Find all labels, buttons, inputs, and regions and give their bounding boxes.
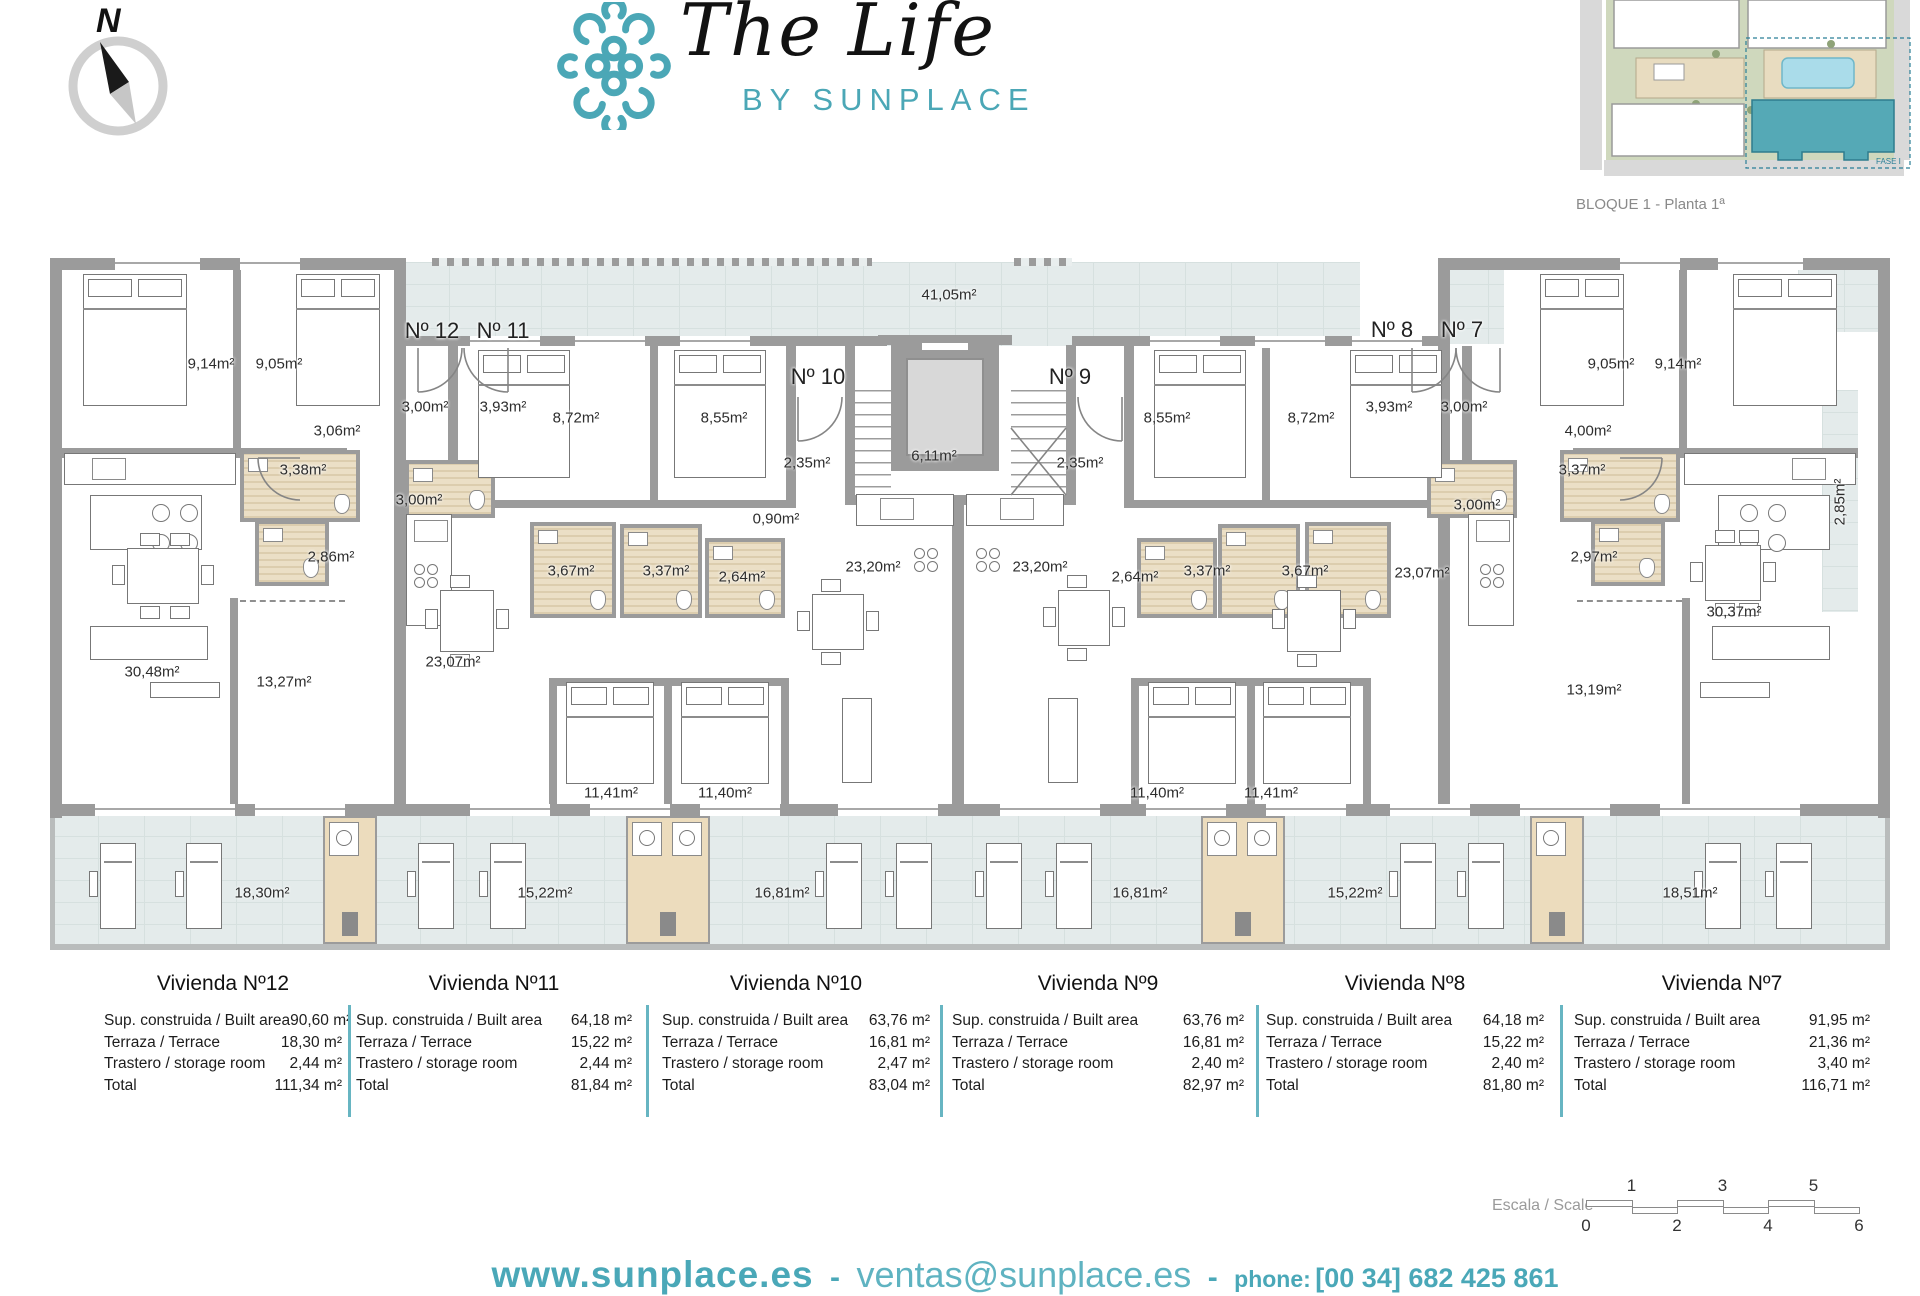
toilet [1654,494,1670,514]
row-value: 81,80 m² [1483,1075,1544,1097]
bed-pillow [138,279,182,297]
wall [1363,682,1371,808]
elevator-door [922,343,968,350]
window [1718,258,1803,270]
lounger-sidetable [1765,871,1774,897]
window [680,336,750,348]
chair [170,606,190,619]
scalebar-segment [1632,1207,1679,1214]
chair [140,533,160,546]
kitchen-counter [64,453,236,485]
dashed-partition [1577,600,1682,602]
room-area-label: 23,20m² [845,559,900,576]
chair [1112,607,1125,627]
dining-table [1287,590,1341,652]
stool [1740,504,1758,522]
bed-pillow [88,279,132,297]
storage-door [1549,912,1565,936]
vivienda-row: Sup. construida / Built area64,18 m² [356,1010,632,1032]
lounger-headrest [1709,861,1737,863]
stove-burner [1493,564,1504,575]
scalebar-segment [1723,1207,1770,1214]
room-area-label: 2,85m² [1832,479,1849,526]
elevator-cab [906,358,984,456]
table-divider [348,1005,351,1117]
wall [1124,346,1134,508]
sun-lounger [826,843,862,929]
chair [821,579,841,592]
window [1620,258,1680,270]
lounger-headrest [1060,861,1088,863]
kitchen-counter [1684,453,1856,485]
stair-flight [852,390,891,495]
wall [664,682,672,808]
vivienda-row: Terraza / Terrace16,81 m² [952,1032,1244,1054]
tv-unit [150,682,220,698]
bed-pillow [301,279,335,297]
dining-table [440,590,494,652]
storage-door [1235,912,1251,936]
room-area-label: 9,14m² [188,356,235,373]
lounger-headrest [830,861,858,863]
window [590,804,670,816]
row-value: 3,40 m² [1817,1053,1870,1075]
bed-blanket-line [1148,716,1236,718]
wall [1124,500,1472,508]
lounger-headrest [1472,861,1500,863]
window [470,804,550,816]
dining-table [1058,590,1110,646]
row-label: Sup. construida / Built area [1266,1010,1452,1032]
lounger-headrest [1404,861,1432,863]
bed-blanket-line [566,716,654,718]
room-area-label: 16,81m² [754,885,809,902]
bed-pillow [1355,355,1393,373]
room-area-label: 0,90m² [753,511,800,528]
vivienda-row: Sup. construida / Built area64,18 m² [1266,1010,1544,1032]
room-area-label: 41,05m² [921,287,976,304]
vivienda-row: Sup. construida / Built area91,95 m² [1574,1010,1870,1032]
room-area-label: 15,22m² [517,885,572,902]
window [838,804,938,816]
chair [201,565,214,585]
room-area-label: 2,35m² [1057,455,1104,472]
terrace-edge-left [50,814,55,950]
lounger-sidetable [1457,871,1466,897]
window [1390,804,1470,816]
row-label: Trastero / storage room [952,1053,1113,1075]
room-area-label: 3,38m² [280,462,327,479]
vivienda-row: Total82,97 m² [952,1075,1244,1097]
vivienda-table: Vivienda Nº10Sup. construida / Built are… [662,972,930,1096]
row-label: Trastero / storage room [356,1053,517,1075]
bed-blanket-line [478,384,570,386]
vivienda-row: Total81,84 m² [356,1075,632,1097]
room-area-label: 16,81m² [1112,885,1167,902]
row-value: 83,04 m² [869,1075,930,1097]
room-area-label: 3,06m² [314,423,361,440]
row-label: Trastero / storage room [104,1053,265,1075]
lounger-sidetable [407,871,416,897]
bed-pillow [483,355,521,373]
table-divider [940,1005,943,1117]
washing-machine-drum [336,830,352,846]
chair [450,575,470,588]
bed-blanket-line [1350,384,1442,386]
chair [1067,648,1087,661]
row-label: Total [104,1075,137,1097]
wall [549,682,557,808]
sink [713,546,733,560]
row-label: Total [662,1075,695,1097]
chair [1297,654,1317,667]
row-value: 63,76 m² [1183,1010,1244,1032]
wall [50,258,402,270]
row-value: 111,34 m² [275,1075,343,1097]
sofa [842,698,872,783]
stair-landing [891,471,999,495]
stove-burner [914,548,925,559]
footer-phone-number: [00 34] 682 425 861 [1315,1263,1558,1293]
row-label: Total [356,1075,389,1097]
room-area-label: 3,37m² [643,563,690,580]
bed-pillow [686,687,722,705]
room-area-label: 2,86m² [308,549,355,566]
sun-lounger [100,843,136,929]
bed-pillow [527,355,565,373]
stove-burner [976,561,987,572]
sink [1599,528,1619,542]
bed-pillow [1545,279,1579,297]
row-value: 21,36 m² [1809,1032,1870,1054]
lounger-sidetable [1389,871,1398,897]
chair [866,611,879,631]
window [1520,804,1610,816]
stair-flight [1011,390,1066,495]
stool [152,504,170,522]
vivienda-row: Trastero / storage room2,40 m² [1266,1053,1544,1075]
toilet [1639,558,1655,578]
terrace-railing [432,258,872,266]
chair [1739,530,1759,543]
row-label: Sup. construida / Built area [356,1010,542,1032]
room-area-label: 8,72m² [1288,410,1335,427]
stool [1768,534,1786,552]
washing-machine-drum [679,830,695,846]
row-label: Terraza / Terrace [104,1032,220,1054]
lounger-sidetable [89,871,98,897]
storage-door [660,912,676,936]
dining-table [812,594,864,650]
vivienda-title: Vivienda Nº8 [1266,972,1544,996]
footer: www.sunplace.es - ventas@sunplace.es - p… [492,1254,1559,1296]
kitchen-sink [1792,458,1826,480]
table-divider [1560,1005,1563,1117]
row-label: Trastero / storage room [662,1053,823,1075]
room-area-label: 2,64m² [1112,569,1159,586]
room-area-label: 11,40m² [1130,785,1184,802]
row-label: Terraza / Terrace [1574,1032,1690,1054]
scalebar-segment [1768,1200,1815,1207]
window [115,258,200,270]
vivienda-row: Total111,34 m² [104,1075,342,1097]
chair [797,611,810,631]
apartment-number-label: Nº 11 [477,318,530,344]
room-area-label: 9,14m² [1655,356,1702,373]
stove-burner [414,564,425,575]
row-value: 90,60 m² [290,1010,351,1032]
vivienda-row: Terraza / Terrace15,22 m² [356,1032,632,1054]
stove-burner [414,577,425,588]
bed-blanket-line [1263,716,1351,718]
row-value: 63,76 m² [869,1010,930,1032]
vivienda-row: Terraza / Terrace21,36 m² [1574,1032,1870,1054]
apartment-number-label: Nº 10 [791,364,846,390]
bed-pillow [571,687,607,705]
chair [1067,575,1087,588]
footer-website-link[interactable]: www.sunplace.es [492,1254,814,1295]
vivienda-row: Trastero / storage room3,40 m² [1574,1053,1870,1075]
vivienda-table: Vivienda Nº7Sup. construida / Built area… [1574,972,1870,1096]
vivienda-row: Total81,80 m² [1266,1075,1544,1097]
vivienda-row: Terraza / Terrace15,22 m² [1266,1032,1544,1054]
scalebar-segment [1814,1207,1861,1214]
room-area-label: 9,05m² [1588,356,1635,373]
vivienda-table: Vivienda Nº9Sup. construida / Built area… [952,972,1244,1096]
row-label: Terraza / Terrace [662,1032,778,1054]
kitchen-sink [1476,520,1510,542]
room-area-label: 8,55m² [701,410,748,427]
lounger-headrest [494,861,522,863]
sun-lounger [896,843,932,929]
vivienda-title: Vivienda Nº12 [104,972,342,996]
stove-burner [927,561,938,572]
scalebar-segment [1586,1200,1633,1207]
row-value: 64,18 m² [571,1010,632,1032]
vivienda-table: Vivienda Nº8Sup. construida / Built area… [1266,972,1544,1096]
stove-burner [927,548,938,559]
scalebar-number: 5 [1809,1176,1818,1196]
sun-lounger [1056,843,1092,929]
chair [140,606,160,619]
lounger-headrest [190,861,218,863]
lounger-headrest [1780,861,1808,863]
vivienda-row: Terraza / Terrace18,30 m² [104,1032,342,1054]
bed-blanket-line [1540,308,1624,310]
footer-separator-1: - [818,1261,852,1294]
bed-pillow [1203,355,1241,373]
row-value: 2,44 m² [289,1053,342,1075]
window [1000,804,1100,816]
room-area-label: 3,00m² [396,492,443,509]
room-area-label: 2,35m² [784,455,831,472]
vivienda-row: Total83,04 m² [662,1075,930,1097]
wall [1262,346,1270,508]
room-area-label: 23,07m² [425,654,480,671]
chair [1343,609,1356,629]
stove-burner [989,561,1000,572]
lounger-sidetable [885,871,894,897]
vivienda-table: Vivienda Nº11Sup. construida / Built are… [356,972,632,1096]
bed-blanket-line [83,308,187,310]
window [1255,336,1325,348]
table-divider [1256,1005,1259,1117]
vivienda-title: Vivienda Nº9 [952,972,1244,996]
room-area-label: 8,55m² [1144,410,1191,427]
sofa [1712,626,1830,660]
vivienda-row: Trastero / storage room2,40 m² [952,1053,1244,1075]
chair [1043,607,1056,627]
lounger-sidetable [479,871,488,897]
terrace-edge-right [1885,814,1890,950]
toilet [469,490,485,510]
lounger-sidetable [975,871,984,897]
bed-pillow [1159,355,1197,373]
row-label: Terraza / Terrace [952,1032,1068,1054]
sink [1145,546,1165,560]
room-area-label: 3,00m² [1454,497,1501,514]
washing-machine-drum [1254,830,1270,846]
room-area-label: 11,41m² [584,785,638,802]
window [700,804,780,816]
row-value: 15,22 m² [571,1032,632,1054]
bed-pillow [679,355,717,373]
row-label: Sup. construida / Built area [662,1010,848,1032]
vivienda-row: Sup. construida / Built area63,76 m² [662,1010,930,1032]
footer-email-link[interactable]: ventas@sunplace.es [857,1254,1192,1295]
sun-lounger [986,843,1022,929]
bed-blanket-line [1154,384,1246,386]
stove-burner [427,564,438,575]
kitchen-sink [92,458,126,480]
sofa [1048,698,1078,783]
chair [425,609,438,629]
bed-pillow [1310,687,1346,705]
terrace-edge-bottom [50,944,1890,950]
room-area-label: 13,19m² [1566,682,1621,699]
room-area-label: 23,20m² [1012,559,1067,576]
room-area-label: 3,37m² [1184,563,1231,580]
bed-pillow [1788,279,1832,297]
lounger-headrest [104,861,132,863]
chair [1690,562,1703,582]
sun-lounger [1400,843,1436,929]
room-area-label: 30,48m² [124,664,179,681]
bed-pillow [1399,355,1437,373]
stove-burner [976,548,987,559]
dashed-partition [240,600,345,602]
window [1146,804,1226,816]
window [1150,336,1220,348]
window [255,804,345,816]
wall [230,598,238,806]
window [1266,804,1346,816]
row-value: 2,47 m² [877,1053,930,1075]
room-area-label: 2,64m² [719,569,766,586]
scalebar-number: 6 [1854,1216,1863,1236]
row-value: 2,44 m² [579,1053,632,1075]
stool [1768,504,1786,522]
chair [821,652,841,665]
scale-bar: 1350246 [1586,1200,1862,1214]
sun-lounger [1468,843,1504,929]
wall [1878,258,1890,818]
chair [112,565,125,585]
row-value: 2,40 m² [1191,1053,1244,1075]
room-area-label: 30,37m² [1706,604,1761,621]
room-area-label: 18,30m² [234,885,289,902]
chair [496,609,509,629]
room-area-label: 3,93m² [480,399,527,416]
sink [1226,532,1246,546]
sink [413,468,433,482]
chair [170,533,190,546]
chair [1272,609,1285,629]
bed-blanket-line [1733,308,1837,310]
sun-lounger [1776,843,1812,929]
scalebar-segment [1677,1200,1724,1207]
room-area-label: 3,00m² [402,399,449,416]
wall [952,505,964,805]
washing-machine-drum [1214,830,1230,846]
bed-blanket-line [674,384,766,386]
vivienda-row: Sup. construida / Built area90,60 m² [104,1010,342,1032]
bed-blanket-line [681,716,769,718]
bed-pillow [723,355,761,373]
sink [248,458,268,472]
room-area-label: 3,37m² [1559,462,1606,479]
room-area-label: 2,97m² [1571,549,1618,566]
row-label: Total [952,1075,985,1097]
wall [845,345,855,505]
toilet [1191,590,1207,610]
row-label: Total [1266,1075,1299,1097]
kitchen-sink [1000,498,1034,520]
dining-table [1705,545,1761,601]
room-area-label: 11,40m² [698,785,752,802]
room-area-label: 8,72m² [553,410,600,427]
toilet [676,590,692,610]
sink [1313,530,1333,544]
chair [1763,562,1776,582]
row-label: Terraza / Terrace [1266,1032,1382,1054]
stove-burner [427,577,438,588]
sun-lounger [186,843,222,929]
room-area-label: 6,11m² [911,448,957,465]
row-value: 16,81 m² [869,1032,930,1054]
room-area-label: 3,67m² [1282,563,1329,580]
sofa [90,626,208,660]
vivienda-row: Sup. construida / Built area63,76 m² [952,1010,1244,1032]
row-value: 18,30 m² [281,1032,342,1054]
bed-pillow [1153,687,1189,705]
scalebar-number: 4 [1763,1216,1772,1236]
lounger-headrest [422,861,450,863]
bed-pillow [1268,687,1304,705]
kitchen-sink [414,520,448,542]
toilet [590,590,606,610]
room-area-label: 4,00m² [1565,423,1612,440]
wall [50,258,62,818]
row-label: Total [1574,1075,1607,1097]
kitchen-sink [880,498,914,520]
vivienda-table: Vivienda Nº12Sup. construida / Built are… [104,972,342,1096]
washing-machine-drum [1543,830,1559,846]
room-area-label: 15,22m² [1327,885,1382,902]
window [240,258,300,270]
wall [1682,598,1690,806]
storage-door [342,912,358,936]
